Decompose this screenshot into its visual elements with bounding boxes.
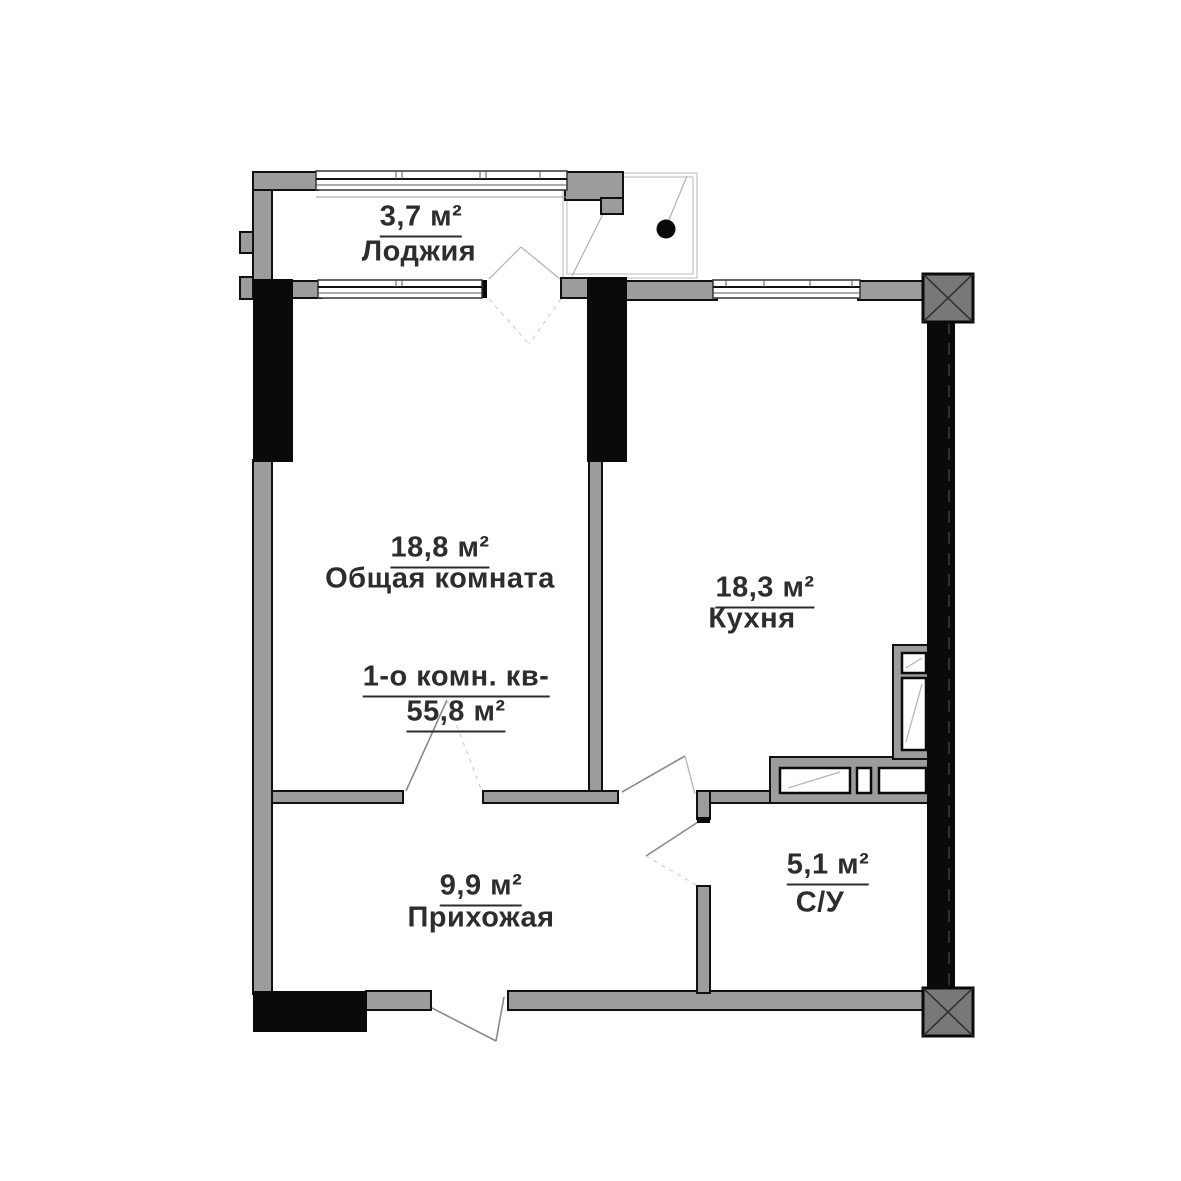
kitchen-name-label: Кухня	[708, 605, 795, 634]
hallway-partition-left	[272, 791, 403, 803]
vent-opening	[857, 768, 871, 793]
summary-text: 1-о комн. кв-	[363, 661, 550, 698]
entrance-door-swing	[432, 997, 504, 1041]
top-wall-segment	[561, 278, 591, 298]
apartment-summary-line2: 55,8 м²	[406, 698, 505, 727]
room-name: Общая комната	[325, 563, 555, 595]
bottom-wall-left	[366, 991, 431, 1010]
living-room-area-label: 18,8 м²	[390, 534, 489, 563]
living-room-name-label: Общая комната	[325, 565, 555, 594]
area-value: 5,1 м²	[787, 849, 869, 886]
vent-opening	[879, 768, 926, 793]
kitchen-window	[713, 280, 860, 298]
balcony-door-swing	[489, 247, 561, 344]
kitchen-door-swing	[622, 756, 695, 794]
loggia-window	[316, 171, 567, 197]
loggia-top-right-step	[601, 198, 623, 214]
bottom-wall-main	[508, 991, 928, 1010]
bathroom-door-swing	[646, 822, 698, 886]
bathroom-wall-stub	[697, 791, 710, 819]
door-jamb	[697, 817, 710, 823]
room-name: С/У	[796, 887, 845, 919]
loggia-top-left-corner	[253, 172, 318, 190]
bathroom-left-wall	[697, 886, 710, 993]
right-outer-wall	[927, 318, 955, 990]
left-outer-wall	[253, 460, 272, 994]
room-name: Прихожая	[407, 902, 554, 934]
loggia-name-label: Лоджия	[362, 238, 476, 267]
middle-column	[587, 277, 627, 462]
apartment-summary-line1: 1-о комн. кв-	[363, 663, 550, 692]
left-wall-notch-upper	[240, 232, 253, 253]
living-room-window	[318, 280, 482, 298]
hallway-area-label: 9,9 м²	[440, 872, 522, 901]
floor-plan-canvas: 3,7 м² Лоджия 18,8 м² Общая комната 1-о …	[0, 0, 1181, 1181]
living-kitchen-partition	[589, 460, 602, 794]
room-name: Кухня	[708, 603, 795, 635]
column-marker-dot	[657, 220, 676, 239]
left-wall-notch-lower	[240, 277, 253, 299]
kitchen-area-label: 18,3 м²	[715, 574, 814, 603]
loggia-area-label: 3,7 м²	[380, 203, 462, 232]
hallway-partition-mid	[483, 791, 618, 803]
loggia-top-right-block	[565, 172, 623, 200]
kitchen-top-wall-left	[625, 281, 717, 300]
bathroom-area-label: 5,1 м²	[787, 851, 869, 880]
bathroom-name-label: С/У	[796, 889, 845, 918]
room-name: Лоджия	[362, 236, 476, 268]
area-value: 3,7 м²	[380, 201, 462, 238]
black-walls	[253, 277, 955, 1032]
hallway-name-label: Прихожая	[407, 904, 554, 933]
left-column	[253, 279, 293, 462]
bottom-left-block	[253, 991, 367, 1032]
kitchen-top-wall-right	[858, 281, 928, 300]
floor-plan-drawing	[0, 0, 1181, 1181]
summary-area: 55,8 м²	[406, 696, 505, 733]
